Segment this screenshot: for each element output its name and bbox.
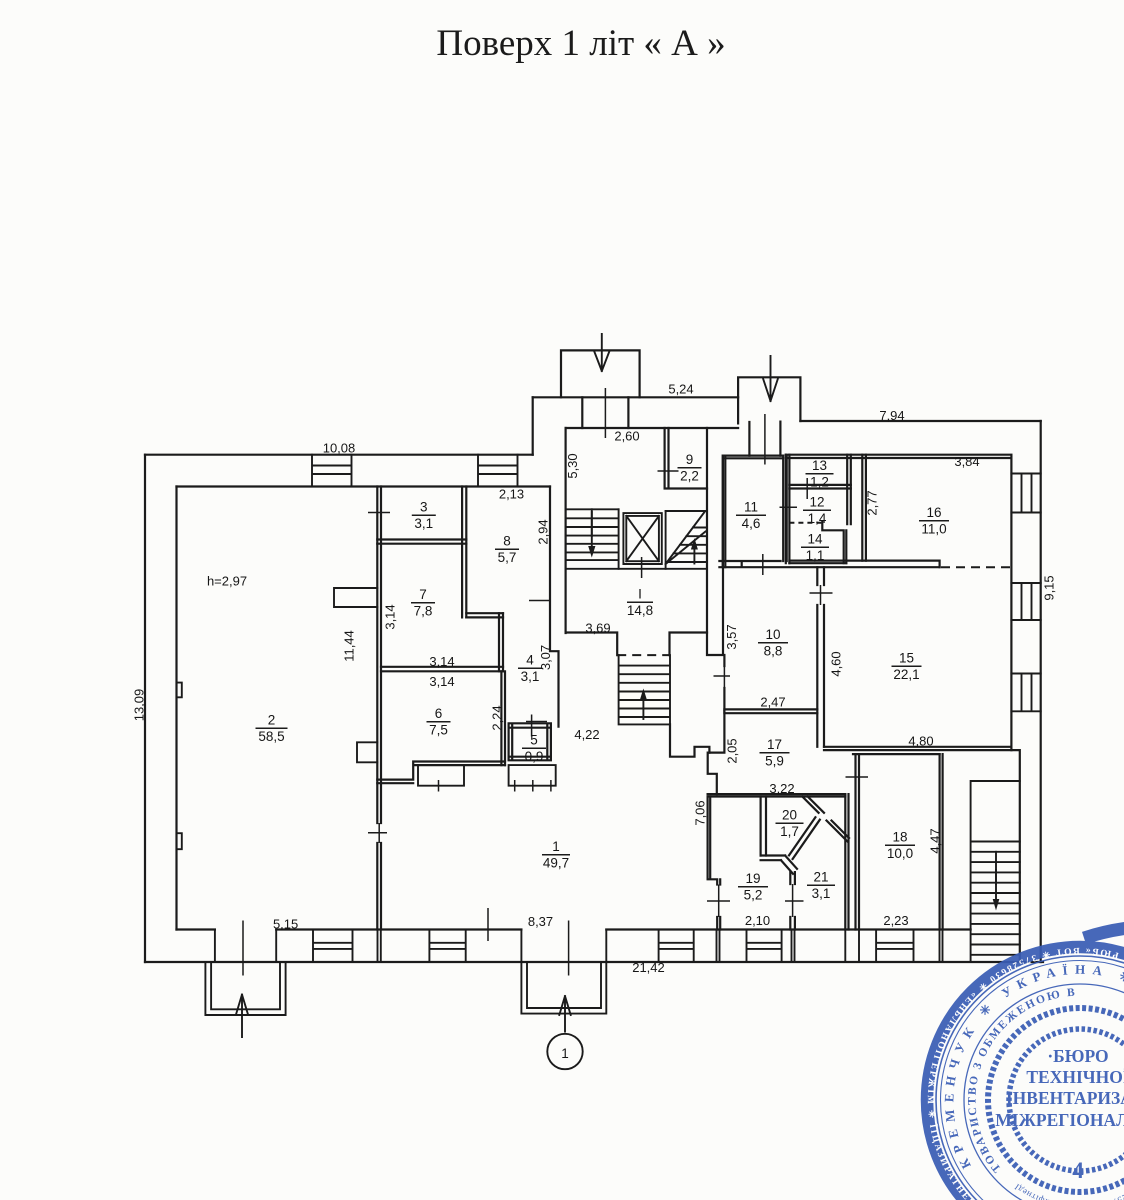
svg-text:1: 1 — [561, 1046, 569, 1061]
svg-text:16: 16 — [926, 505, 941, 520]
svg-text:11: 11 — [744, 500, 758, 515]
svg-text:1,4: 1,4 — [808, 511, 827, 526]
svg-text:5: 5 — [530, 733, 538, 748]
svg-text:10,08: 10,08 — [323, 441, 356, 456]
svg-text:5,7: 5,7 — [498, 550, 517, 565]
svg-text:13,09: 13,09 — [132, 689, 147, 722]
svg-text:10: 10 — [765, 627, 780, 642]
svg-text:3,14: 3,14 — [429, 674, 454, 689]
svg-text:58,5: 58,5 — [258, 729, 284, 744]
svg-text:7,94: 7,94 — [879, 408, 904, 423]
svg-text:14: 14 — [807, 532, 823, 547]
svg-text:3,1: 3,1 — [521, 669, 540, 684]
svg-text:3: 3 — [420, 500, 428, 515]
svg-text:2,10: 2,10 — [745, 913, 770, 928]
svg-text:11,44: 11,44 — [342, 630, 357, 662]
svg-text:5,15: 5,15 — [273, 917, 298, 932]
svg-text:2,05: 2,05 — [725, 738, 740, 763]
svg-text:3,57: 3,57 — [724, 624, 739, 649]
svg-text:17: 17 — [767, 737, 782, 752]
svg-text:8,37: 8,37 — [528, 914, 553, 929]
svg-text:18: 18 — [892, 830, 907, 845]
svg-text:9,15: 9,15 — [1042, 575, 1057, 600]
svg-text:7,8: 7,8 — [414, 604, 433, 619]
svg-text:2,24: 2,24 — [490, 705, 505, 730]
svg-text:3,14: 3,14 — [383, 604, 398, 629]
svg-text:1,7: 1,7 — [780, 824, 799, 839]
svg-text:Поверх 1 літ « А »: Поверх 1 літ « А » — [436, 23, 725, 64]
svg-text:4,22: 4,22 — [574, 727, 599, 742]
svg-text:21,42: 21,42 — [632, 960, 665, 975]
svg-text:21: 21 — [813, 870, 828, 885]
svg-text:9: 9 — [686, 452, 694, 467]
svg-text:1: 1 — [552, 839, 560, 854]
svg-text:1,2: 1,2 — [810, 475, 829, 490]
svg-text:5,9: 5,9 — [765, 754, 784, 769]
svg-text:12: 12 — [809, 495, 824, 510]
svg-text:7,5: 7,5 — [429, 723, 448, 738]
svg-text:13: 13 — [812, 458, 827, 473]
svg-text:4,60: 4,60 — [829, 651, 844, 676]
svg-text:3,1: 3,1 — [414, 516, 433, 531]
svg-text:4: 4 — [526, 653, 534, 668]
svg-text:h=2,97: h=2,97 — [207, 574, 247, 589]
svg-text:14,8: 14,8 — [627, 603, 653, 618]
svg-text:2,77: 2,77 — [865, 490, 880, 515]
svg-text:22,1: 22,1 — [893, 667, 919, 682]
svg-text:11,0: 11,0 — [921, 522, 946, 537]
svg-text:5,24: 5,24 — [668, 382, 693, 397]
svg-text:3,22: 3,22 — [769, 781, 794, 796]
svg-text:2,94: 2,94 — [536, 519, 551, 544]
svg-text:ІНВЕНТАРИЗАЦІЇ: ІНВЕНТАРИЗАЦІЇ — [1006, 1088, 1124, 1108]
svg-text:1,1: 1,1 — [806, 548, 825, 563]
svg-text:I: I — [638, 587, 642, 602]
svg-text:2,60: 2,60 — [614, 429, 639, 444]
svg-text:ТЕХНІЧНОЇ: ТЕХНІЧНОЇ — [1026, 1067, 1124, 1087]
svg-text:3,07: 3,07 — [538, 645, 553, 670]
svg-text:49,7: 49,7 — [543, 856, 569, 871]
svg-text:20: 20 — [782, 808, 797, 823]
svg-text:15: 15 — [899, 651, 914, 666]
svg-text:4: 4 — [1072, 1158, 1084, 1183]
svg-text:5,30: 5,30 — [565, 453, 580, 478]
svg-text:4,6: 4,6 — [742, 516, 761, 531]
svg-text:·БЮРО: ·БЮРО — [1047, 1046, 1108, 1066]
svg-text:3,14: 3,14 — [429, 654, 454, 669]
svg-text:2,23: 2,23 — [883, 913, 908, 928]
svg-text:2: 2 — [268, 713, 276, 728]
svg-text:3,1: 3,1 — [812, 886, 831, 901]
svg-text:МІЖРЕГІОНАЛЬНЕ»: МІЖРЕГІОНАЛЬНЕ» — [995, 1110, 1124, 1130]
svg-text:5,2: 5,2 — [744, 888, 763, 903]
svg-text:10,0: 10,0 — [887, 846, 913, 861]
svg-text:6: 6 — [435, 706, 443, 721]
svg-text:8: 8 — [503, 534, 511, 549]
svg-text:19: 19 — [745, 871, 760, 886]
svg-text:0,9: 0,9 — [525, 749, 544, 764]
svg-text:7: 7 — [419, 587, 427, 602]
svg-text:4,80: 4,80 — [908, 734, 933, 749]
svg-text:2,13: 2,13 — [499, 487, 524, 502]
svg-text:3,84: 3,84 — [954, 454, 979, 469]
svg-text:2,47: 2,47 — [760, 695, 785, 710]
svg-text:2,2: 2,2 — [680, 469, 699, 484]
svg-text:8,8: 8,8 — [764, 644, 783, 659]
svg-text:7,06: 7,06 — [693, 800, 708, 825]
svg-text:3,69: 3,69 — [585, 621, 610, 636]
svg-text:4,47: 4,47 — [928, 828, 943, 853]
